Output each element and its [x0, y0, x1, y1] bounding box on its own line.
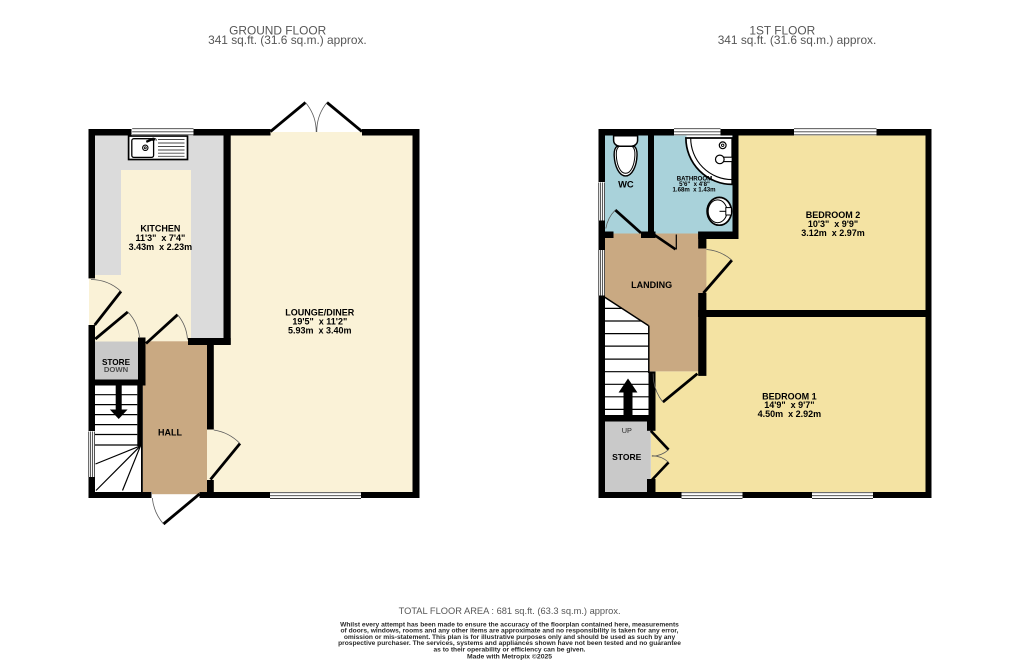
svg-text:UP: UP: [622, 426, 632, 435]
svg-text:3.43m x 2.23m: 3.43m x 2.23m: [129, 242, 193, 252]
svg-text:Made with Metropix ©2025: Made with Metropix ©2025: [467, 652, 552, 660]
svg-text:4.50m x 2.92m: 4.50m x 2.92m: [758, 409, 822, 419]
svg-text:3.12m x 2.97m: 3.12m x 2.97m: [801, 228, 865, 238]
svg-text:WC: WC: [618, 178, 634, 189]
svg-text:DOWN: DOWN: [104, 365, 129, 374]
svg-text:STORE: STORE: [612, 452, 641, 462]
svg-text:LANDING: LANDING: [631, 280, 672, 290]
svg-text:1.68m x 1.43m: 1.68m x 1.43m: [672, 186, 716, 193]
svg-text:as to their operability or eff: as to their operability or efficiency ca…: [433, 646, 585, 653]
svg-text:HALL: HALL: [158, 428, 182, 438]
svg-text:341 sq.ft. (31.6 sq.m.) approx: 341 sq.ft. (31.6 sq.m.) approx.: [208, 33, 367, 47]
svg-text:TOTAL FLOOR AREA : 681 sq.ft.: TOTAL FLOOR AREA : 681 sq.ft. (63.3 sq.m…: [399, 606, 621, 616]
svg-text:5.93m x 3.40m: 5.93m x 3.40m: [288, 325, 352, 335]
svg-text:341 sq.ft. (31.6 sq.m.) approx: 341 sq.ft. (31.6 sq.m.) approx.: [718, 33, 877, 47]
